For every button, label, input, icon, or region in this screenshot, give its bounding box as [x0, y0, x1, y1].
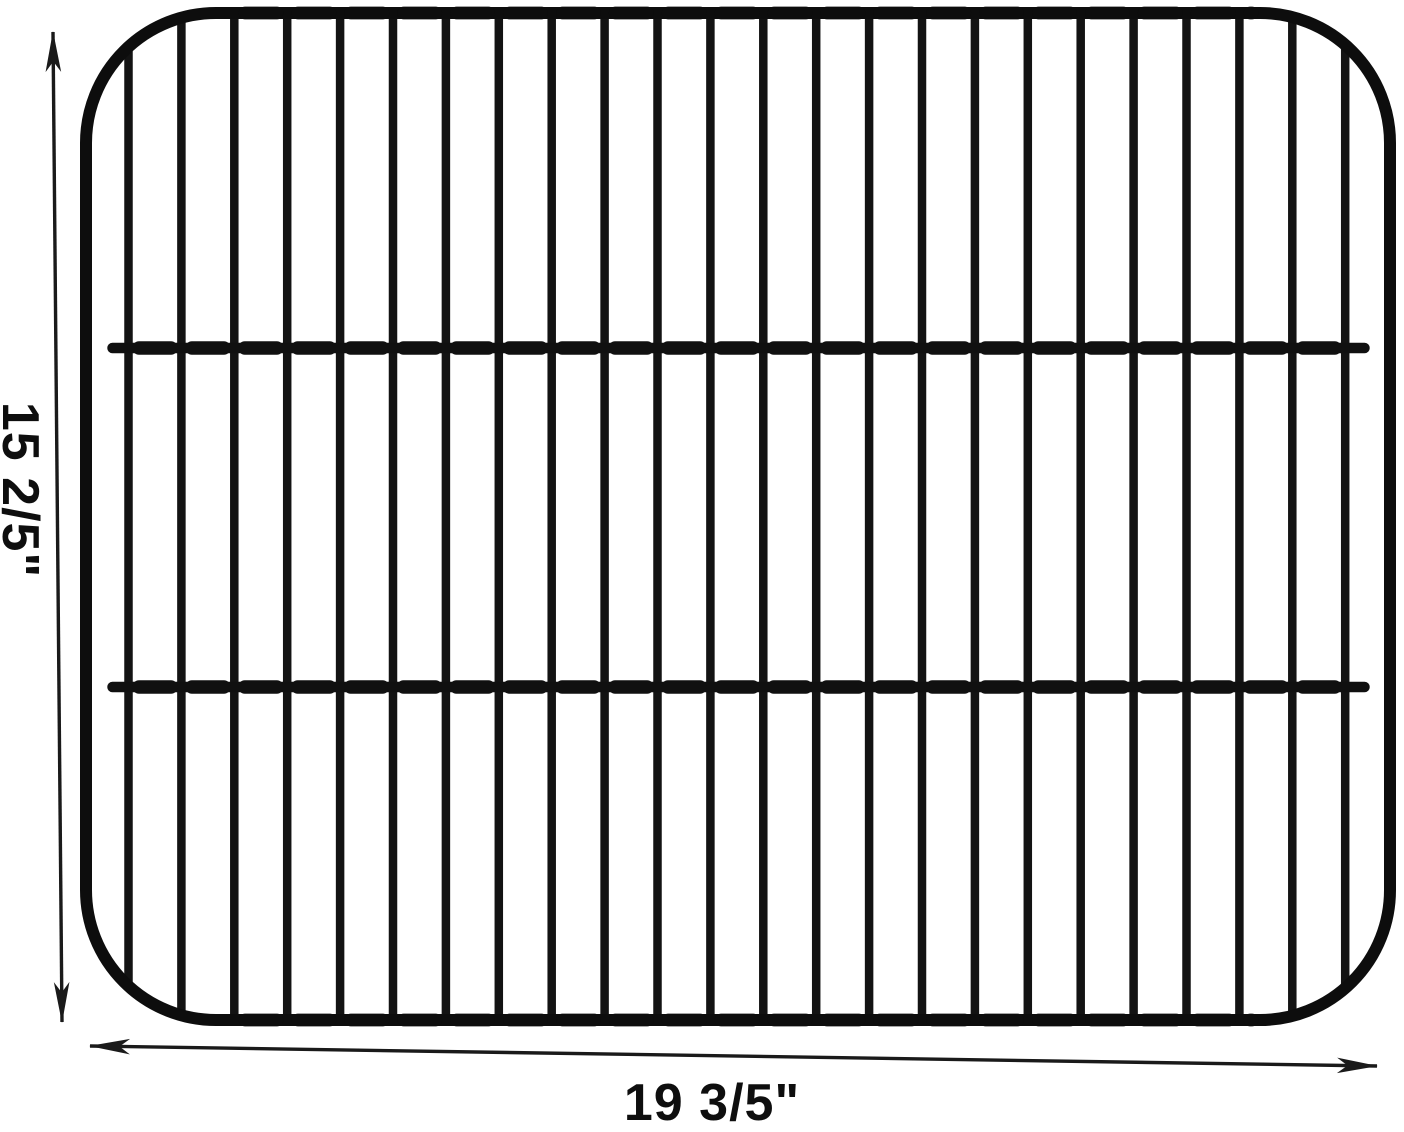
product-image: 15 2/5" 19 3/5": [0, 0, 1404, 1132]
width-dimension-label: 19 3/5": [512, 1074, 912, 1132]
width-arrow-line: [90, 1046, 1377, 1066]
height-arrow-line: [53, 32, 62, 1022]
grill-grate-graphic: [0, 0, 1404, 1132]
vertical-wires: [129, 8, 1346, 1026]
height-dimension-label: 15 2/5": [0, 290, 49, 690]
height-dimension-arrow: [53, 32, 62, 1022]
width-dimension-arrow: [90, 1046, 1377, 1066]
crossbar-wires: [113, 348, 1365, 687]
grate-frame: [86, 13, 1390, 1020]
